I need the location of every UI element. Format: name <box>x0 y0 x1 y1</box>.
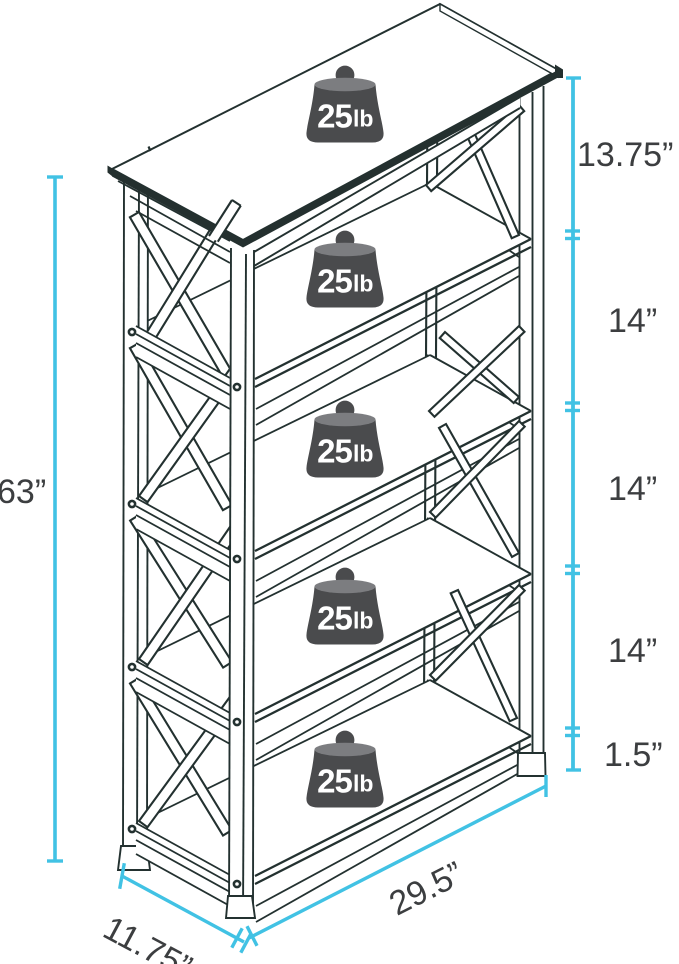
svg-text:14”: 14” <box>608 470 657 508</box>
svg-text:lb: lb <box>353 608 373 634</box>
svg-text:13.75”: 13.75” <box>577 136 673 174</box>
svg-text:25: 25 <box>317 263 352 300</box>
svg-text:1.5”: 1.5” <box>604 736 663 774</box>
svg-text:lb: lb <box>353 441 373 467</box>
svg-text:lb: lb <box>353 106 373 132</box>
svg-text:25: 25 <box>317 600 352 637</box>
svg-text:29.5”: 29.5” <box>383 854 469 923</box>
svg-text:63”: 63” <box>0 473 46 511</box>
svg-text:lb: lb <box>353 271 373 297</box>
svg-text:25: 25 <box>317 433 352 470</box>
svg-text:14”: 14” <box>608 302 657 340</box>
svg-text:lb: lb <box>353 771 373 797</box>
svg-text:25: 25 <box>317 763 352 800</box>
svg-text:25: 25 <box>317 98 352 135</box>
svg-text:11.75”: 11.75” <box>97 909 198 964</box>
svg-text:14”: 14” <box>608 632 657 670</box>
